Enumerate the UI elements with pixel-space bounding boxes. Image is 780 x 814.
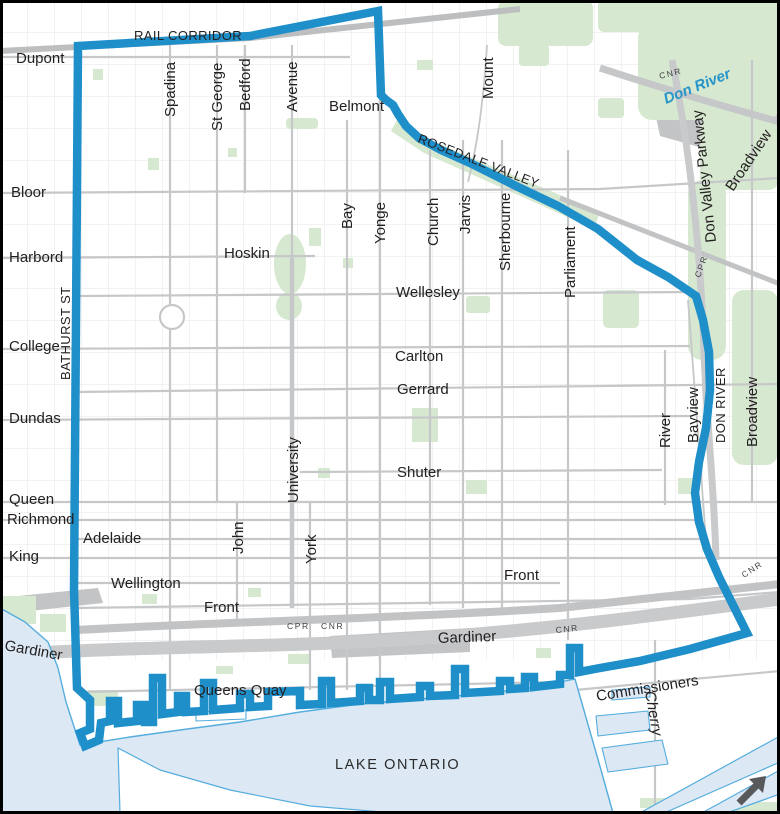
map-label-don-river-caps: DON RIVER	[713, 367, 728, 443]
east-slip-2	[596, 711, 650, 736]
map-label-york: York	[303, 534, 320, 564]
map-label-sherbourne: Sherbourne	[497, 193, 514, 271]
map-label-gardiner-centre: Gardiner	[438, 628, 497, 647]
map-label-church: Church	[425, 198, 442, 246]
map-label-rail-corridor: RAIL CORRIDOR	[134, 28, 242, 43]
map-label-broadview-south: Broadview	[744, 377, 761, 447]
map-label-st-george: St George	[209, 63, 226, 131]
east-slip-3	[602, 740, 668, 772]
map-label-parliament: Parliament	[562, 225, 579, 298]
map-label-wellington: Wellington	[111, 575, 181, 592]
map-label-cpr-south: CPR	[287, 621, 310, 631]
map-label-queens-quay: Queens Quay	[194, 682, 287, 699]
map-label-bedford: Bedford	[237, 58, 254, 111]
map-label-avenue: Avenue	[284, 61, 301, 112]
map-label-university: University	[285, 437, 302, 503]
map-label-bloor: Bloor	[11, 184, 46, 201]
map-label-cnr-south: CNR	[321, 621, 344, 631]
map-label-carlton: Carlton	[395, 348, 443, 365]
map-label-belmont: Belmont	[329, 98, 385, 115]
map-label-bay: Bay	[339, 203, 356, 229]
map-label-king: King	[9, 548, 39, 565]
map-label-lake-ontario: LAKE ONTARIO	[335, 757, 460, 773]
map-label-john: John	[230, 521, 247, 554]
map-label-harbord: Harbord	[9, 249, 63, 266]
map-label-bayview: Bayview	[685, 387, 702, 443]
map-canvas: RAIL CORRIDORDupontBloorHarbordBATHURST …	[0, 0, 780, 814]
map-label-front-east: Front	[504, 567, 540, 584]
map-label-wellesley: Wellesley	[396, 284, 460, 301]
map-label-bathurst-st: BATHURST ST	[58, 287, 73, 380]
map-label-college: College	[9, 338, 60, 355]
map-label-spadina: Spadina	[162, 61, 179, 117]
toronto-boundary-map: RAIL CORRIDORDupontBloorHarbordBATHURST …	[0, 0, 780, 814]
map-label-queen: Queen	[9, 491, 54, 508]
map-label-dundas: Dundas	[9, 410, 61, 427]
map-label-yonge: Yonge	[372, 202, 389, 244]
map-label-richmond: Richmond	[7, 511, 75, 528]
map-label-front-west: Front	[204, 599, 240, 616]
map-label-mount: Mount	[480, 56, 497, 99]
map-label-dupont: Dupont	[16, 50, 65, 67]
map-label-gerrard: Gerrard	[397, 381, 449, 398]
map-label-jarvis: Jarvis	[457, 195, 474, 234]
map-label-adelaide: Adelaide	[83, 530, 141, 547]
traffic-circle	[160, 305, 184, 329]
map-label-hoskin: Hoskin	[224, 245, 270, 262]
map-label-river-st: River	[657, 413, 674, 448]
map-label-shuter: Shuter	[397, 464, 441, 481]
